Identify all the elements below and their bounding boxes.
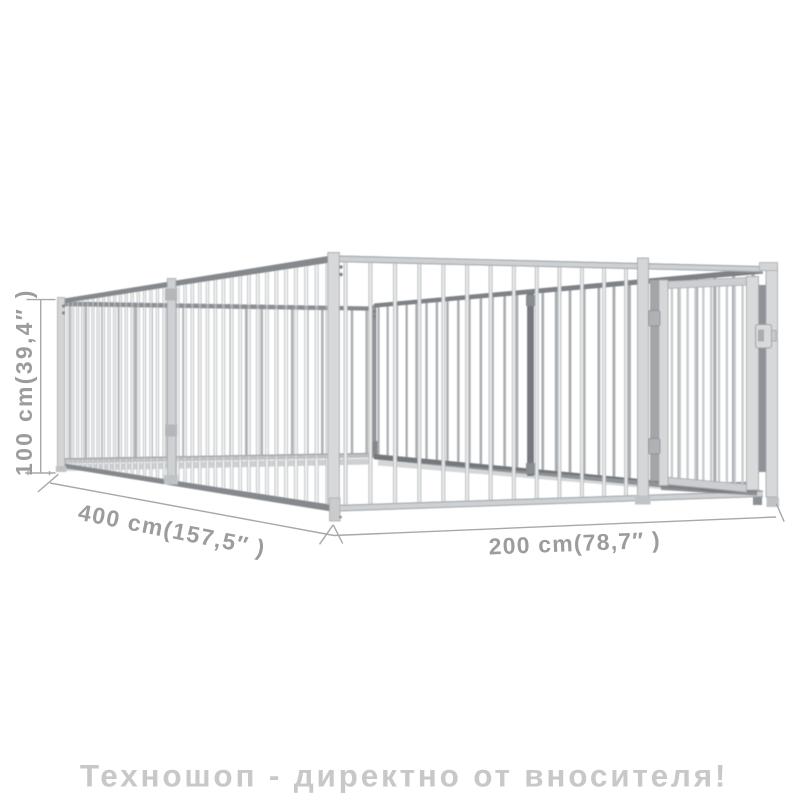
svg-text:100 cm(39,4″ ): 100 cm(39,4″ ): [11, 288, 37, 476]
svg-text:Техношоп - директно от вносите: Техношоп - директно от вносителя!: [80, 758, 728, 794]
